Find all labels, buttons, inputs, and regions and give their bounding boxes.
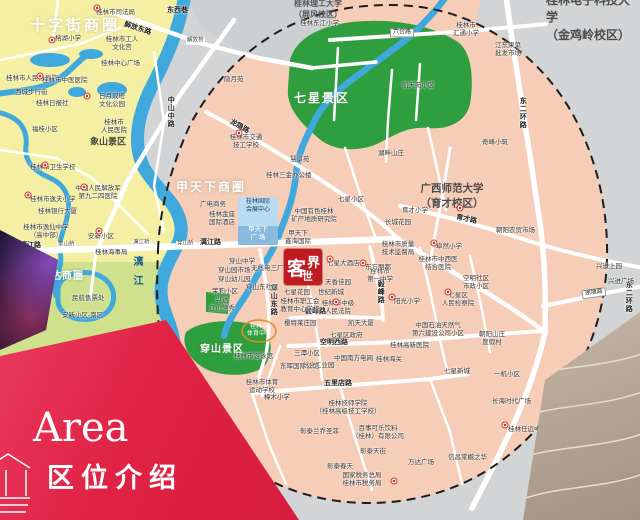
poi-marker: [84, 93, 91, 100]
poi-marker: [327, 256, 334, 263]
project-logo-keshijie: 客 世 界: [284, 249, 322, 285]
poi-marker: [96, 228, 103, 235]
poi-marker: [445, 289, 452, 296]
poi-marker: [389, 294, 396, 301]
convention-center-block: 桂林国际 会展中心 甲天下 广 场: [238, 197, 278, 245]
poi-marker: [94, 5, 101, 12]
poi-marker: [236, 130, 243, 137]
jiatianxia-plaza-label: 甲天下 广 场: [238, 226, 278, 245]
poi-marker: [81, 184, 88, 191]
poi-marker: [25, 192, 32, 199]
poi-marker: [457, 205, 464, 212]
banner-title-en: Area: [33, 405, 129, 451]
guilin-location-map: 桂林国际 会展中心 甲天下 广 场 十字街商圈甲天下商圈联达商圈七星景区穿山景区…: [0, 0, 640, 520]
poi-marker: [502, 422, 509, 429]
poi-marker: [49, 37, 56, 44]
poi-marker: [42, 162, 49, 169]
poi-marker: [360, 260, 367, 267]
poi-marker: [431, 240, 438, 247]
pavilion-icon: [0, 448, 38, 518]
convention-center-label: 桂林国际 会展中心: [238, 197, 278, 226]
poi-marker: [333, 299, 340, 306]
poi-marker: [391, 478, 398, 485]
logo-char-3: 界: [307, 252, 320, 271]
poi-marker: [37, 73, 44, 80]
banner-title-zh: 区位介绍: [47, 456, 183, 495]
